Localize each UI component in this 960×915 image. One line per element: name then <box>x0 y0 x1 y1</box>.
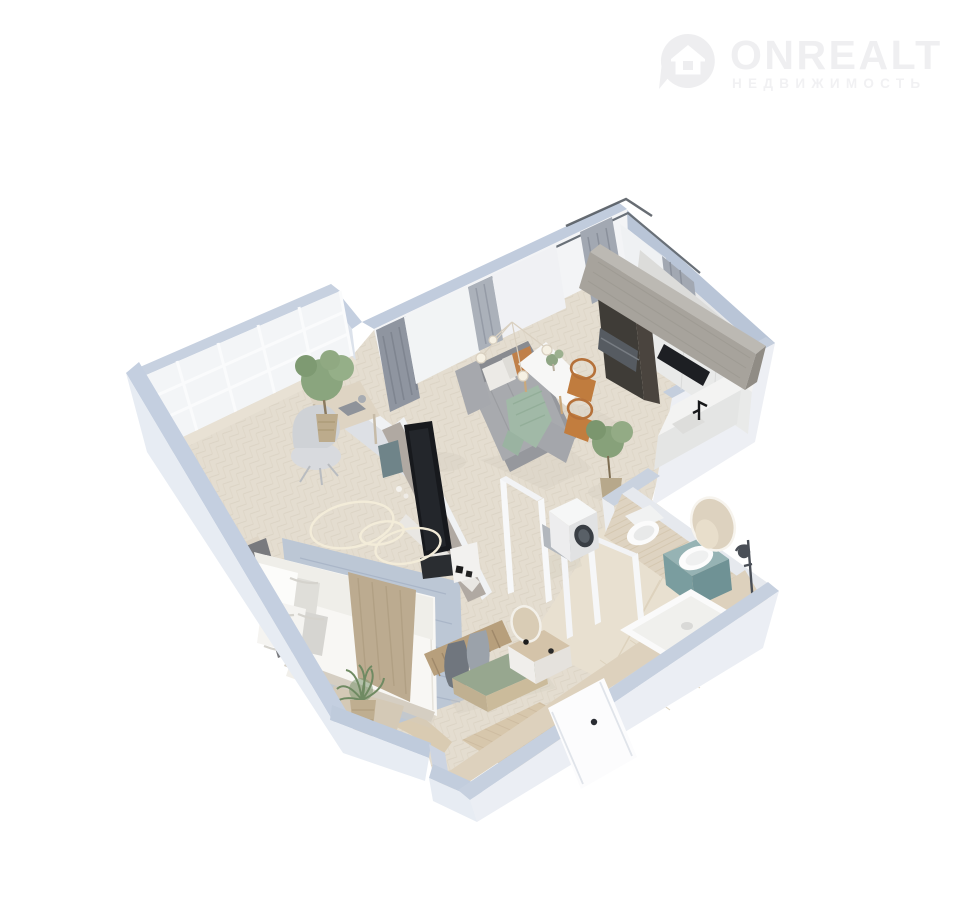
svg-text:НЕДВИЖИМОСТЬ: НЕДВИЖИМОСТЬ <box>732 76 926 91</box>
svg-text:ONREALT: ONREALT <box>730 32 943 78</box>
